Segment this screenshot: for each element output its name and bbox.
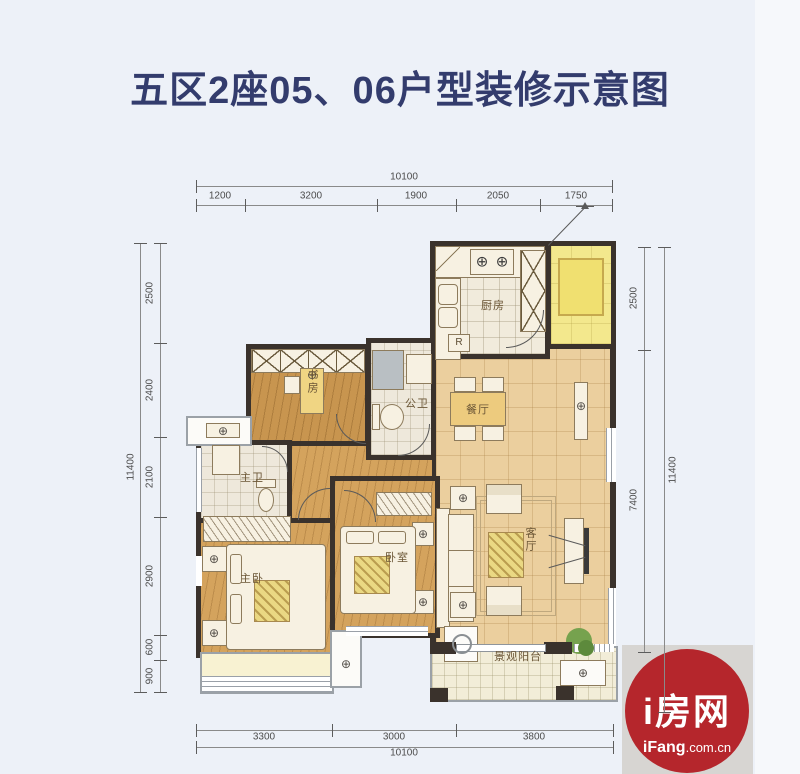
pillow: [378, 531, 406, 544]
label-living: 客厅: [522, 527, 538, 553]
plant: [578, 640, 594, 656]
pillow: [346, 531, 374, 544]
dim-top-seg: 1900: [405, 191, 427, 202]
dimension-tick: [612, 199, 613, 212]
floorplan-page: 五区2座05、06户型装修示意图 ⊕ ⊕ ⊕ ⊕ R: [0, 0, 800, 774]
dining-chair: [454, 426, 476, 441]
planter-icon: ⊕: [578, 667, 588, 679]
dim-left-seg: 600: [145, 639, 156, 656]
label-balcony: 景观阳台: [494, 648, 542, 664]
dimension-tick: [196, 180, 197, 193]
dimension-tick: [154, 437, 167, 438]
dimension-line: [644, 247, 645, 652]
pillow: [230, 594, 242, 624]
master-bath-sink: [212, 445, 240, 475]
bath-sink: [406, 354, 432, 384]
fridge: R: [448, 334, 470, 352]
study-chair: [284, 376, 300, 394]
bed-throw: [254, 580, 290, 622]
dimension-tick: [638, 350, 651, 351]
kitchen-sink: [438, 284, 458, 305]
master-wardrobe: [203, 516, 291, 542]
dimension-tick: [612, 180, 613, 193]
label-master-bedroom: 主卧: [240, 570, 264, 586]
lamp-icon: ⊕: [418, 528, 428, 540]
door-knob-icon: ⊕: [576, 400, 586, 412]
dimension-tick: [154, 635, 167, 636]
lamp-icon: ⊕: [209, 627, 219, 639]
dimension-tick: [196, 741, 197, 754]
label-kitchen: 厨房: [481, 297, 505, 313]
cabinet-x-panel: [336, 350, 364, 372]
balcony-post: [556, 686, 574, 700]
dimension-line: [160, 243, 161, 692]
ifang-logo: i房网 iFang.com.cn: [622, 645, 753, 774]
dim-top-seg: 1750: [565, 191, 587, 202]
page-right-strip: [755, 0, 800, 774]
tv-cabinet: [564, 518, 584, 584]
ac-icon: ⊕: [341, 658, 351, 670]
shower: [372, 350, 404, 390]
kitchen-sink: [438, 307, 458, 328]
dim-right-seg: 7400: [629, 489, 640, 511]
dim-left-seg: 2400: [145, 379, 156, 401]
bay-window: [200, 652, 334, 694]
dimension-line: [664, 247, 665, 712]
dining-chair: [482, 426, 504, 441]
dimension-tick: [456, 724, 457, 737]
kitchen-corner-shelf: [436, 247, 460, 271]
cabinet-x-panel: [521, 251, 545, 291]
ifang-domain-rest: .com.cn: [686, 740, 732, 755]
dim-left-seg: 2100: [145, 466, 156, 488]
dimension-tick: [154, 343, 167, 344]
wall-segment: [544, 642, 572, 654]
dimension-tick: [134, 692, 147, 693]
dim-left-seg: 2500: [145, 282, 156, 304]
lamp-icon: ⊕: [458, 492, 468, 504]
dimension-tick: [456, 199, 457, 212]
dim-bottom-overall: 10100: [390, 748, 418, 759]
dim-left-overall: 11400: [126, 453, 137, 480]
dim-right-overall: 11400: [668, 456, 679, 483]
window-dining-right: [606, 428, 616, 482]
dimension-tick: [638, 247, 651, 248]
lamp-icon: ⊕: [418, 596, 428, 608]
window-left-bath: [196, 448, 202, 512]
dim-bottom-seg: 3000: [383, 732, 405, 743]
bedroom-wardrobe: [376, 492, 432, 516]
dimension-tick: [638, 652, 651, 653]
ifang-domain-bold: iFang: [643, 739, 686, 756]
dimension-tick: [540, 199, 541, 212]
dimension-tick: [154, 517, 167, 518]
dimension-tick: [332, 724, 333, 737]
entry-mat: [558, 258, 604, 316]
ifang-logo-name: i房网: [625, 683, 749, 735]
dimension-tick: [154, 243, 167, 244]
dim-left-seg: 900: [145, 668, 156, 685]
dim-top-overall: 10100: [390, 172, 418, 183]
label-study: 书房: [304, 369, 320, 395]
ifang-logo-domain: iFang.com.cn: [625, 739, 749, 757]
dim-top-seg: 1200: [209, 191, 231, 202]
dimension-tick: [613, 724, 614, 737]
armchair: [486, 586, 522, 616]
dimension-tick: [154, 660, 167, 661]
bedroom-window: [346, 626, 428, 636]
fixture-icon: ⊕: [218, 425, 228, 437]
page-title: 五区2座05、06户型装修示意图: [0, 59, 800, 114]
dimension-tick: [196, 724, 197, 737]
dimension-tick: [196, 199, 197, 212]
dining-chair: [482, 377, 504, 392]
dimension-line: [140, 243, 141, 692]
dim-bottom-seg: 3800: [523, 732, 545, 743]
lamp-icon: ⊕: [458, 599, 468, 611]
toilet-bowl: [258, 488, 274, 512]
label-dining: 餐厅: [466, 401, 490, 417]
tv: [584, 528, 589, 574]
burner-icon: ⊕: [496, 255, 509, 270]
dimension-tick: [658, 712, 671, 713]
balcony-post: [430, 688, 448, 702]
dim-top-seg: 2050: [487, 191, 509, 202]
dimension-tick: [613, 741, 614, 754]
entry-arrow-icon: [581, 202, 589, 209]
dim-top-seg: 3200: [300, 191, 322, 202]
coffee-table: [488, 532, 524, 578]
dim-left-seg: 2900: [145, 565, 156, 587]
toilet-tank: [372, 404, 380, 430]
dimension-tick: [154, 692, 167, 693]
washer-drum: [452, 634, 472, 654]
dimension-tick: [377, 199, 378, 212]
dimension-line: [196, 186, 612, 187]
armchair: [486, 484, 522, 514]
entry-door-leaf: [548, 207, 586, 246]
lamp-icon: ⊕: [209, 553, 219, 565]
ifang-logo-circle: i房网 iFang.com.cn: [625, 649, 749, 773]
label-master-bath: 主卫: [240, 469, 264, 485]
label-public-bath: 公卫: [405, 395, 429, 411]
dim-bottom-seg: 3300: [253, 732, 275, 743]
dining-chair: [454, 377, 476, 392]
label-bedroom: 卧室: [385, 549, 409, 565]
dimension-tick: [658, 247, 671, 248]
dimension-tick: [245, 199, 246, 212]
bay-window-glass: [202, 676, 332, 692]
dim-right-seg: 2500: [629, 287, 640, 309]
cabinet-x-panel: [252, 350, 280, 372]
burner-icon: ⊕: [476, 255, 489, 270]
dimension-line: [196, 205, 612, 206]
fridge-label: R: [455, 337, 462, 348]
dimension-tick: [134, 243, 147, 244]
window-living-right: [608, 588, 616, 646]
